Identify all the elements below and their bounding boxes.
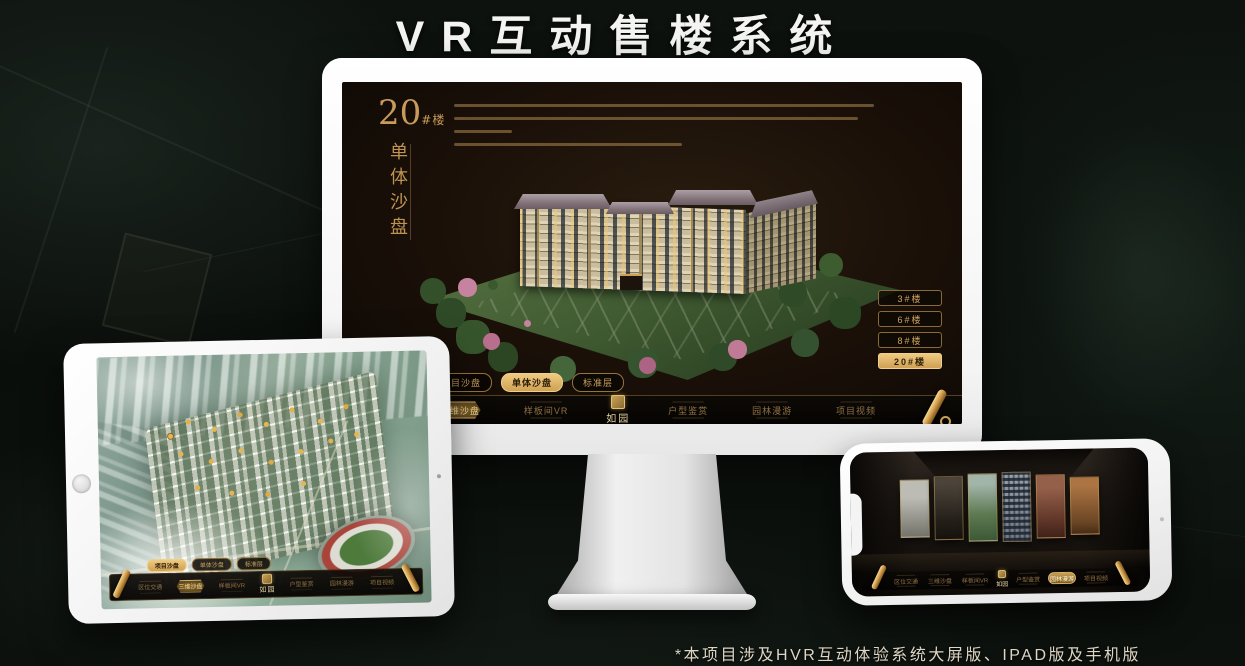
tablet-mode-tabs: 项目沙盘 单体沙盘 标准层 — [147, 557, 271, 573]
nav-item-showroom-vr[interactable]: 样板间VR — [960, 574, 991, 586]
background-picture-frame — [102, 233, 213, 348]
nav-item-location-traffic[interactable]: 区位交通 — [892, 575, 920, 586]
page-title: VR互动售楼系统 — [0, 2, 1245, 64]
nav-item-garden-roam[interactable]: 园林漫游 — [1048, 572, 1076, 583]
gallery-panel-landscape[interactable] — [968, 473, 998, 541]
tablet-screen: 项目沙盘 单体沙盘 标准层 区位交通 三维沙盘 样板间VR 如园 户型鉴赏 园林… — [96, 350, 431, 609]
building-number-badges — [168, 434, 173, 439]
nav-item-project-video[interactable]: 项目视频 — [1082, 572, 1110, 583]
floor-button-column: 3#楼 6#楼 8#楼 20#楼 — [878, 290, 942, 369]
phone-device: 区位交通 三维沙盘 样板间VR 如园 户型鉴赏 园林漫游 项目视频 — [840, 438, 1173, 606]
phone-camera-icon — [1160, 517, 1164, 521]
flower-decoration — [524, 320, 531, 327]
floor-button-20[interactable]: 20#楼 — [878, 353, 942, 369]
background-map-line — [14, 47, 109, 333]
building-heading: 20#楼 — [378, 96, 445, 130]
scroll-icon[interactable] — [401, 563, 421, 593]
building-3d-render[interactable] — [428, 170, 900, 384]
nav-item-3d-sandbox[interactable]: 三维沙盘 — [926, 574, 954, 585]
nav-item-unit-gallery[interactable]: 户型鉴赏 — [662, 401, 714, 420]
brand-logo[interactable]: 如园 — [606, 395, 630, 424]
floor-button-8[interactable]: 8#楼 — [878, 332, 942, 348]
brand-logo[interactable]: 如园 — [996, 570, 1008, 588]
tab-project-sandbox[interactable]: 项目沙盘 — [147, 559, 187, 573]
tab-single-building-sandbox[interactable]: 单体沙盘 — [501, 373, 563, 392]
tab-standard-floor[interactable]: 标准层 — [572, 373, 624, 392]
tablet-bottom-navbar: 区位交通 三维沙盘 样板间VR 如园 户型鉴赏 园林漫游 项目视频 — [109, 568, 423, 602]
tab-single-building-sandbox[interactable]: 单体沙盘 — [192, 558, 232, 572]
tab-standard-floor[interactable]: 标准层 — [237, 557, 271, 571]
gallery-panel-interior-warm[interactable] — [1070, 476, 1100, 534]
building-roof — [668, 190, 758, 205]
phone-notch — [850, 494, 862, 556]
gallery-panel-autumn[interactable] — [1036, 474, 1066, 538]
nav-item-3d-sandbox[interactable]: 三维沙盘 — [176, 579, 204, 593]
nav-item-location-traffic[interactable]: 区位交通 — [136, 580, 164, 594]
nav-item-showroom-vr[interactable]: 样板间VR — [217, 578, 248, 592]
phone-screen: 区位交通 三维沙盘 样板间VR 如园 户型鉴赏 园林漫游 项目视频 — [850, 448, 1150, 597]
background-foliage — [1030, 120, 1245, 420]
footnote-text: *本项目涉及HVR互动体验系统大屏版、IPAD版及手机版 — [675, 641, 1141, 665]
monitor-stand-neck — [552, 454, 752, 602]
brand-seal-icon — [998, 570, 1006, 578]
brand-seal-icon — [611, 395, 625, 409]
nav-item-project-video[interactable]: 项目视频 — [830, 401, 882, 420]
gallery-panel-interior-dark[interactable] — [934, 476, 964, 540]
scroll-icon[interactable] — [112, 569, 131, 599]
brand-logo[interactable]: 如园 — [259, 574, 275, 595]
building-model — [520, 174, 820, 306]
nav-item-unit-gallery[interactable]: 户型鉴赏 — [287, 577, 315, 591]
monitor-stand-base — [548, 594, 756, 610]
nav-item-project-video[interactable]: 项目视频 — [368, 575, 396, 589]
floor-button-6[interactable]: 6#楼 — [878, 311, 942, 327]
scene-gallery-panels — [900, 470, 1100, 543]
brand-name: 如园 — [259, 585, 275, 595]
building-entrance — [620, 274, 642, 290]
nav-item-garden-roam[interactable]: 园林漫游 — [746, 401, 798, 420]
tablet-device: 项目沙盘 单体沙盘 标准层 区位交通 三维沙盘 样板间VR 如园 户型鉴赏 园林… — [63, 336, 455, 624]
sandbox-mode-tabs: 项目沙盘 单体沙盘 标准层 — [430, 373, 624, 392]
brand-name: 如园 — [996, 579, 1008, 588]
nav-item-showroom-vr[interactable]: 样板间VR — [518, 401, 575, 420]
nav-item-garden-roam[interactable]: 园林漫游 — [328, 576, 356, 590]
subtitle-divider — [410, 144, 411, 240]
gallery-panel-courtyard[interactable] — [900, 479, 930, 537]
building-subtitle-vertical: 单体沙盘 — [384, 142, 410, 252]
floor-button-3[interactable]: 3#楼 — [878, 290, 942, 306]
building-roof — [606, 202, 674, 214]
scroll-icon[interactable] — [914, 396, 954, 424]
brand-name: 如园 — [606, 410, 630, 424]
nav-item-unit-gallery[interactable]: 户型鉴赏 — [1014, 573, 1042, 584]
brand-seal-icon — [262, 574, 272, 584]
poster-stage: VR互动售楼系统 20#楼 单体沙盘 — [0, 0, 1245, 666]
tablet-camera-icon — [437, 474, 441, 478]
gallery-panel-building[interactable] — [1002, 472, 1032, 542]
building-roof — [514, 194, 612, 209]
description-text-blurred — [454, 104, 886, 156]
trees-decoration — [488, 280, 498, 290]
